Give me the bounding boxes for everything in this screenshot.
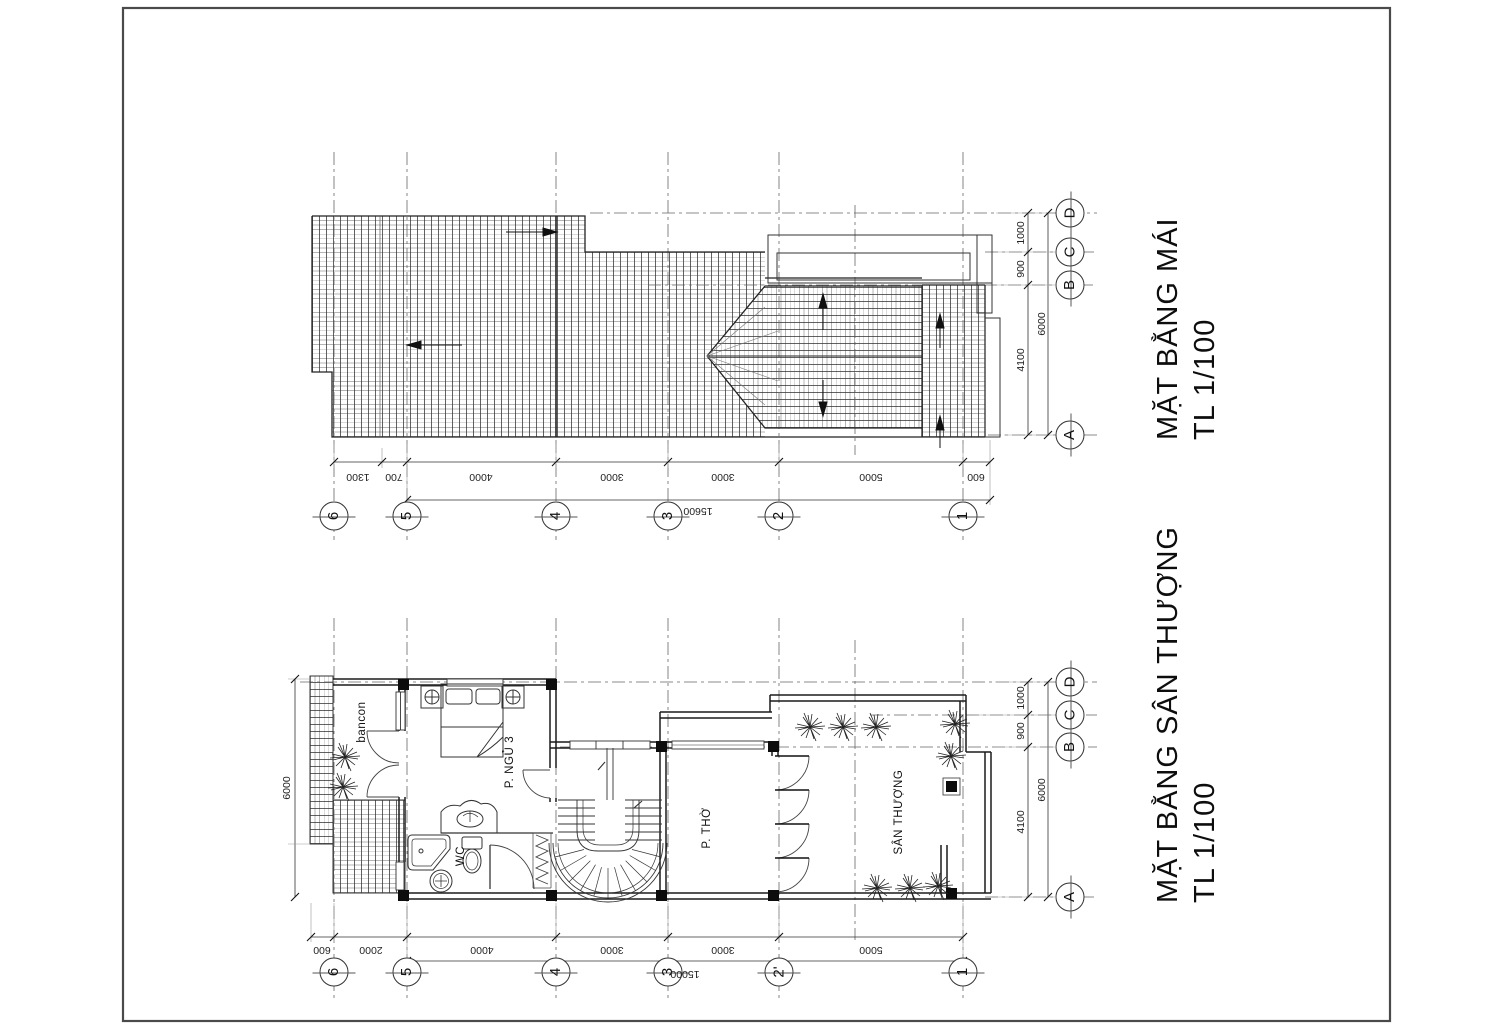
room-label-altar: P. THỜ <box>701 807 713 848</box>
roof-parapet-outline <box>768 235 1000 437</box>
dim-label: 3000 <box>600 944 623 956</box>
roof-dim-lines <box>334 213 1048 500</box>
dim-total-label: 6000 <box>1036 312 1048 335</box>
linework <box>0 0 1500 1029</box>
bubble-label: 2' <box>771 966 788 977</box>
stair <box>549 748 667 902</box>
bubble-label: 6 <box>326 968 343 976</box>
dim-total-label: 15600 <box>683 505 712 517</box>
roof-grid-bubble-B: B <box>1056 271 1085 300</box>
roof-outline <box>312 216 985 437</box>
bubble-label: 4 <box>548 968 565 976</box>
terrace-dim-lines <box>295 679 1048 961</box>
vent-zigzag <box>533 833 551 888</box>
roof-grid-bubble-4: 4 <box>542 502 571 531</box>
terrace-plan-title: MẶT BẰNG SÂN THƯỢNG TL 1/100 <box>1150 526 1224 903</box>
room-label-wc: WC <box>455 846 467 866</box>
room-label-terrace: SÂN THƯỢNG <box>893 770 905 855</box>
room-label-balcony: bancon <box>356 701 368 742</box>
dim-total-label: 6000 <box>1036 778 1048 801</box>
plants <box>328 710 970 902</box>
bubble-label: C <box>1062 247 1079 258</box>
bubble-label: 5 <box>399 512 416 520</box>
roof-dim-ext-lines <box>334 213 1055 505</box>
dim-label: 700 <box>385 471 403 483</box>
dim-label: 4000 <box>469 471 492 483</box>
dim-label: 5000 <box>859 944 882 956</box>
dim-label: 2000 <box>359 944 382 956</box>
roof-grid-bubble-A: A <box>1056 421 1085 450</box>
room-label-bedroom: P. NGỦ 3 <box>504 736 516 789</box>
bubble-label: 3 <box>660 512 677 520</box>
roof-plan-title-line1: MẶT BẰNG MÁI <box>1150 217 1187 440</box>
dim-label: 600 <box>313 944 331 956</box>
roof-grid-bubble-2: 2 <box>765 502 794 531</box>
vanity-sink <box>441 800 553 833</box>
terrace-plan-title-line1: MẶT BẰNG SÂN THƯỢNG <box>1150 526 1187 903</box>
bubble-label: 1 <box>955 968 972 976</box>
terrace-grid-bubble-4: 4 <box>542 958 571 987</box>
terrace-windows <box>396 679 764 890</box>
roof-plan-title: MẶT BẰNG MÁI TL 1/100 <box>1150 217 1224 440</box>
bubble-label: A <box>1061 430 1078 440</box>
dim-label: 900 <box>1015 722 1027 740</box>
bed <box>441 684 503 757</box>
dim-label: 6000 <box>281 776 293 799</box>
dim-label: 3000 <box>711 471 734 483</box>
bubble-label: B <box>1061 742 1078 752</box>
terrace-grid-bubble-6: 6 <box>320 958 349 987</box>
roof-plan-title-line2: TL 1/100 <box>1187 217 1224 440</box>
terrace-grid-bubble-D: D <box>1056 668 1085 697</box>
roof-grid-bubble-6: 6 <box>320 502 349 531</box>
bubble-label: D <box>1062 677 1079 688</box>
terrace-grid-bubble-B: B <box>1056 733 1085 762</box>
terrace-grid-lines <box>300 618 1097 998</box>
terrace-grid-bubble-A: A <box>1056 883 1085 912</box>
dim-label: 5000 <box>859 471 882 483</box>
dim-label: 3000 <box>600 471 623 483</box>
bubble-label: 5 <box>399 968 416 976</box>
round-sink <box>430 870 452 892</box>
drawing-sheet: 6 5 4 3 2 1 D C B A 6 5 4 3 2' 1 D C B A… <box>0 0 1500 1029</box>
dim-label: 600 <box>967 471 985 483</box>
terrace-plan-title-line2: TL 1/100 <box>1187 526 1224 903</box>
dim-label: 4000 <box>470 944 493 956</box>
terrace-grid-bubble-2p: 2' <box>765 958 794 987</box>
bubble-label: 1 <box>955 512 972 520</box>
dim-label: 1300 <box>346 471 369 483</box>
roof-slope-arrows <box>407 228 944 448</box>
terrace-grid-bubble-1: 1 <box>949 958 978 987</box>
roof-grid-bubble-D: D <box>1056 199 1085 228</box>
dim-label: 900 <box>1015 260 1027 278</box>
bubble-label: D <box>1062 208 1079 219</box>
bathtub <box>408 835 450 870</box>
door-arcs <box>367 731 809 892</box>
roof-grid-bubble-C: C <box>1056 238 1085 267</box>
bubble-label: 6 <box>326 512 343 520</box>
roof-grid-bubble-5: 5 <box>393 502 422 531</box>
terrace-grid-bubble-5: 5 <box>393 958 422 987</box>
dim-label: 1000 <box>1015 221 1027 244</box>
dim-label: 4100 <box>1015 348 1027 371</box>
dim-label: 1000 <box>1015 686 1027 709</box>
roof-grid-bubble-1: 1 <box>949 502 978 531</box>
roof-grid-bubble-3: 3 <box>654 502 683 531</box>
dim-total-label: 15000 <box>670 968 699 980</box>
bubble-label: C <box>1062 710 1079 721</box>
bubble-label: A <box>1061 892 1078 902</box>
dim-label: 4100 <box>1015 810 1027 833</box>
bubble-label: 4 <box>548 512 565 520</box>
bubble-label: 2 <box>771 512 788 520</box>
bubble-label: B <box>1061 280 1078 290</box>
dim-label: 3000 <box>711 944 734 956</box>
